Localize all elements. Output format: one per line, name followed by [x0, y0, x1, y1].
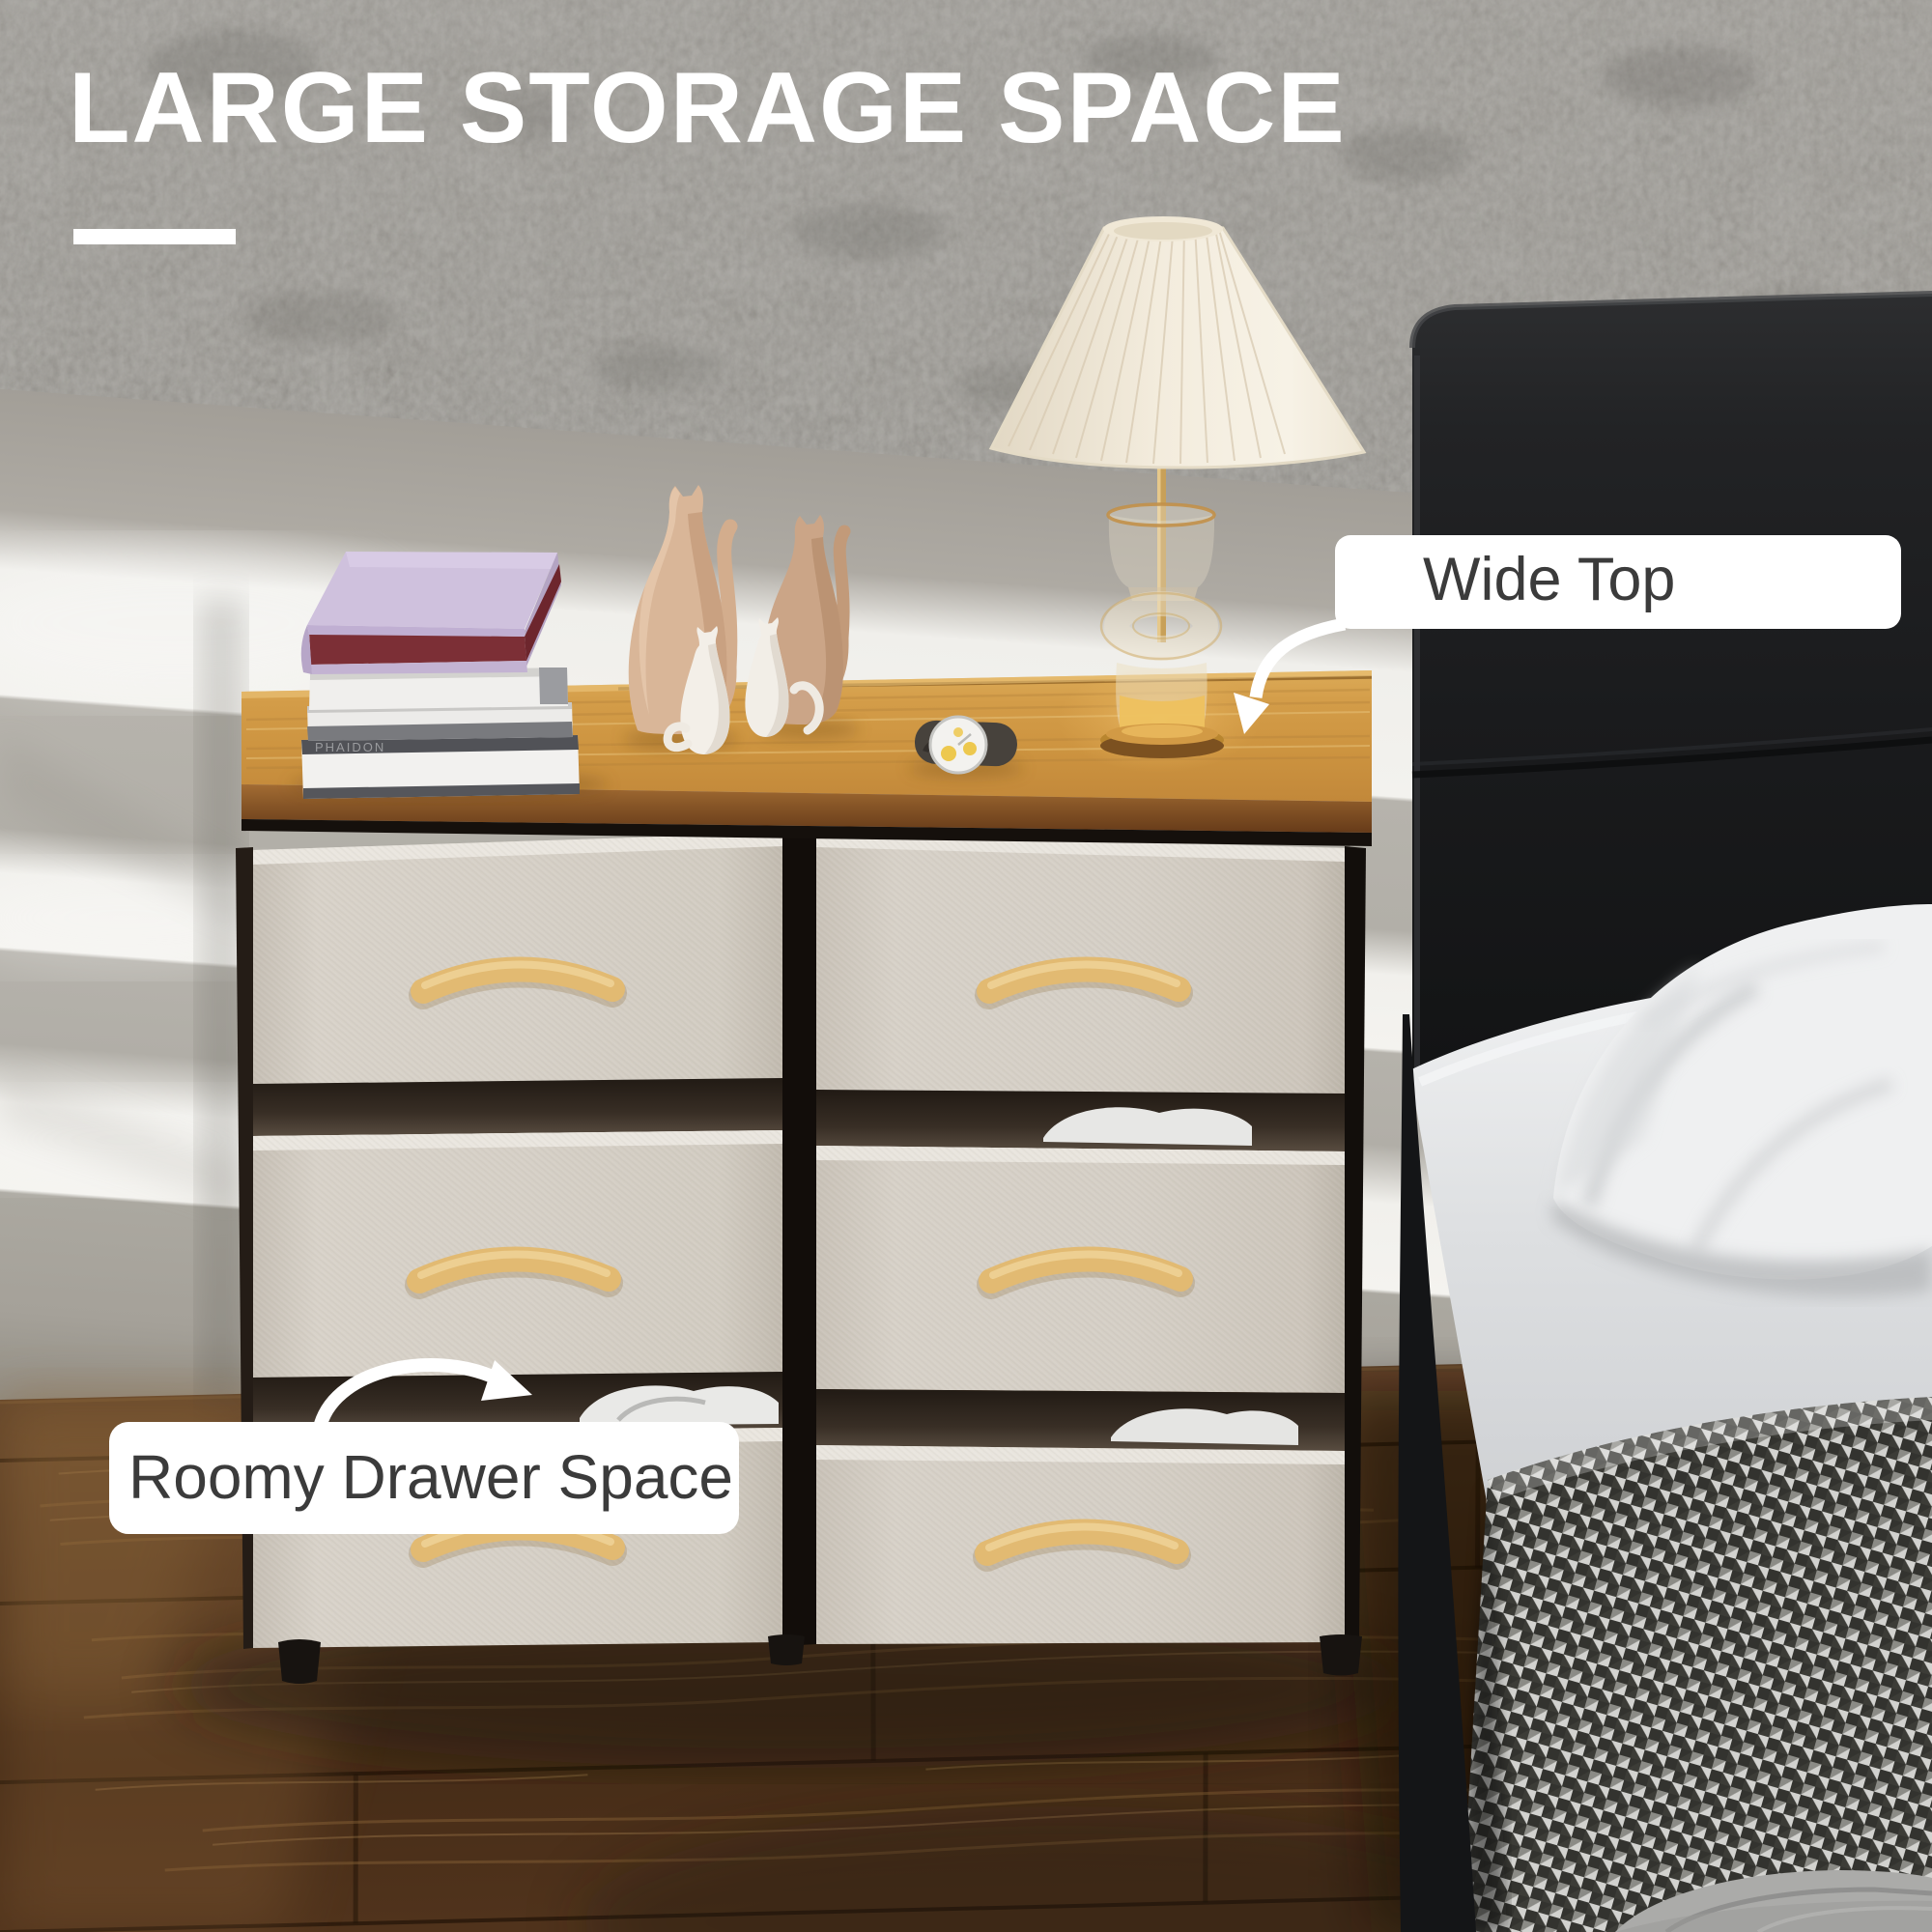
- svg-text:LARGE STORAGE SPACE: LARGE STORAGE SPACE: [69, 52, 1347, 164]
- svg-text:PHAIDON: PHAIDON: [315, 740, 385, 754]
- svg-text:Roomy Drawer Space: Roomy Drawer Space: [128, 1442, 733, 1512]
- svg-text:Wide Top: Wide Top: [1423, 546, 1675, 613]
